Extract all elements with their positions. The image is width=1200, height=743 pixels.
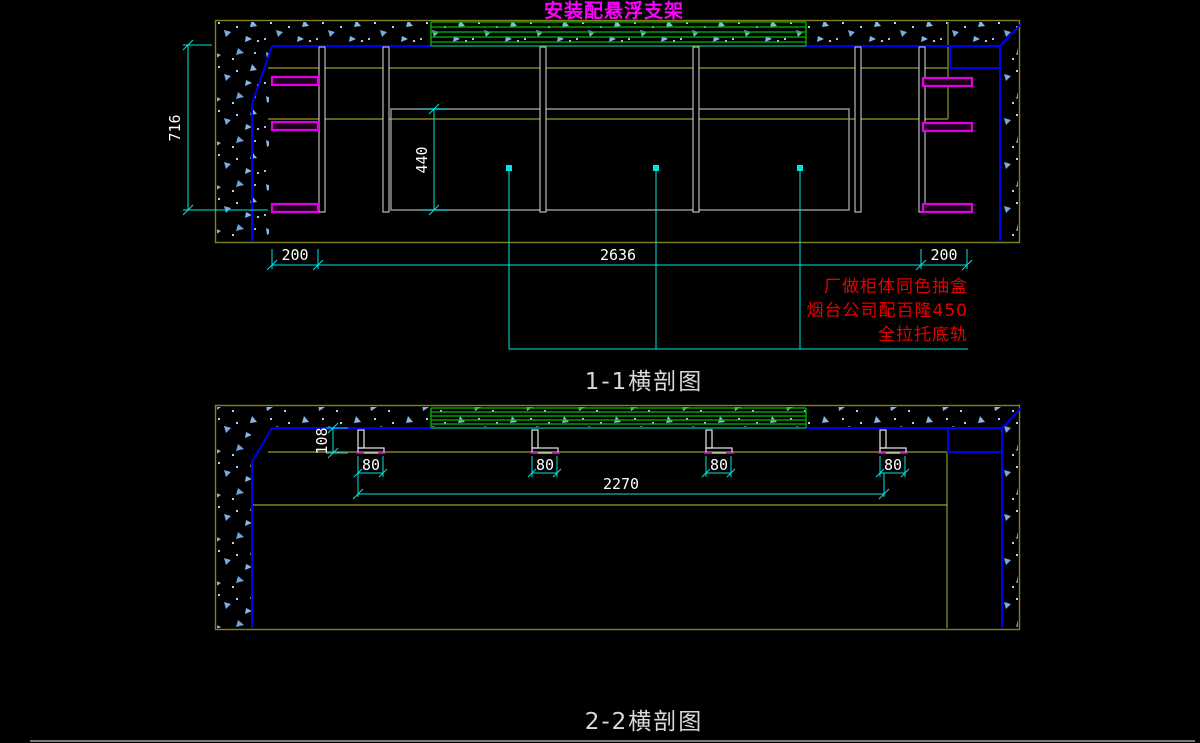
bracket-3 (704, 430, 734, 453)
dim-bracket-span: 2270 (353, 473, 889, 499)
section1-outer-border (216, 21, 1020, 243)
bracket-4 (878, 430, 908, 453)
section2-caption: 2-2横剖图 (585, 709, 704, 735)
note-leader (506, 165, 968, 349)
section2-olive-lines (252, 452, 948, 628)
section2-drawing: 108 80 80 80 80 (216, 406, 1022, 736)
dim-overall-height-label: 716 (166, 114, 184, 141)
dim-right-gap-label: 200 (930, 246, 957, 264)
drawer-note-line3: 全拉托底轨 (878, 325, 968, 345)
dim-bracket-width-label-3: 80 (710, 456, 728, 474)
drawer-note-line2: 烟台公司配百隆450 (807, 301, 968, 321)
dim-drawer-zone-height: 440 (413, 104, 448, 215)
section1-drawing: 716 440 200 2636 200 (166, 21, 1021, 396)
cad-drawing: 716 440 200 2636 200 (0, 0, 1200, 743)
dim-bracket-width-label-1: 80 (362, 456, 380, 474)
drawing-title: 安装配悬浮支架 (544, 0, 684, 22)
section1-caption: 1-1横剖图 (585, 369, 704, 395)
dim-drawer-zone-height-label: 440 (413, 146, 431, 173)
dim-bracket-span-label: 2270 (603, 475, 639, 493)
cad-drawing-canvas: 716 440 200 2636 200 (0, 0, 1200, 743)
dim-bracket-widths: 80 80 80 80 (354, 456, 909, 477)
dim-bracket-drop: 108 (313, 423, 348, 458)
dim-chain-bottom: 200 2636 200 (267, 246, 972, 270)
section2-outer-border (216, 406, 1020, 630)
section1-drawer-zone-box (391, 109, 849, 210)
section1-partitions (319, 47, 925, 212)
section2-concrete-hatch (217, 407, 1018, 628)
bracket-1 (356, 430, 386, 453)
section1-shelf-brackets (272, 77, 972, 212)
section2-wall-outline (252, 408, 1021, 628)
section1-concrete-hatch (217, 22, 1018, 241)
section2-hanging-brackets (356, 430, 908, 453)
dim-cabinet-span-label: 2636 (600, 246, 636, 264)
dim-bracket-drop-label: 108 (313, 427, 331, 454)
dim-bracket-width-label-2: 80 (536, 456, 554, 474)
drawer-note: 厂做柜体同色抽盒 烟台公司配百隆450 全拉托底轨 (807, 277, 968, 345)
bracket-2 (530, 430, 560, 453)
drawer-note-line1: 厂做柜体同色抽盒 (824, 277, 968, 297)
dim-left-gap-label: 200 (281, 246, 308, 264)
dim-bracket-width-label-4: 80 (884, 456, 902, 474)
